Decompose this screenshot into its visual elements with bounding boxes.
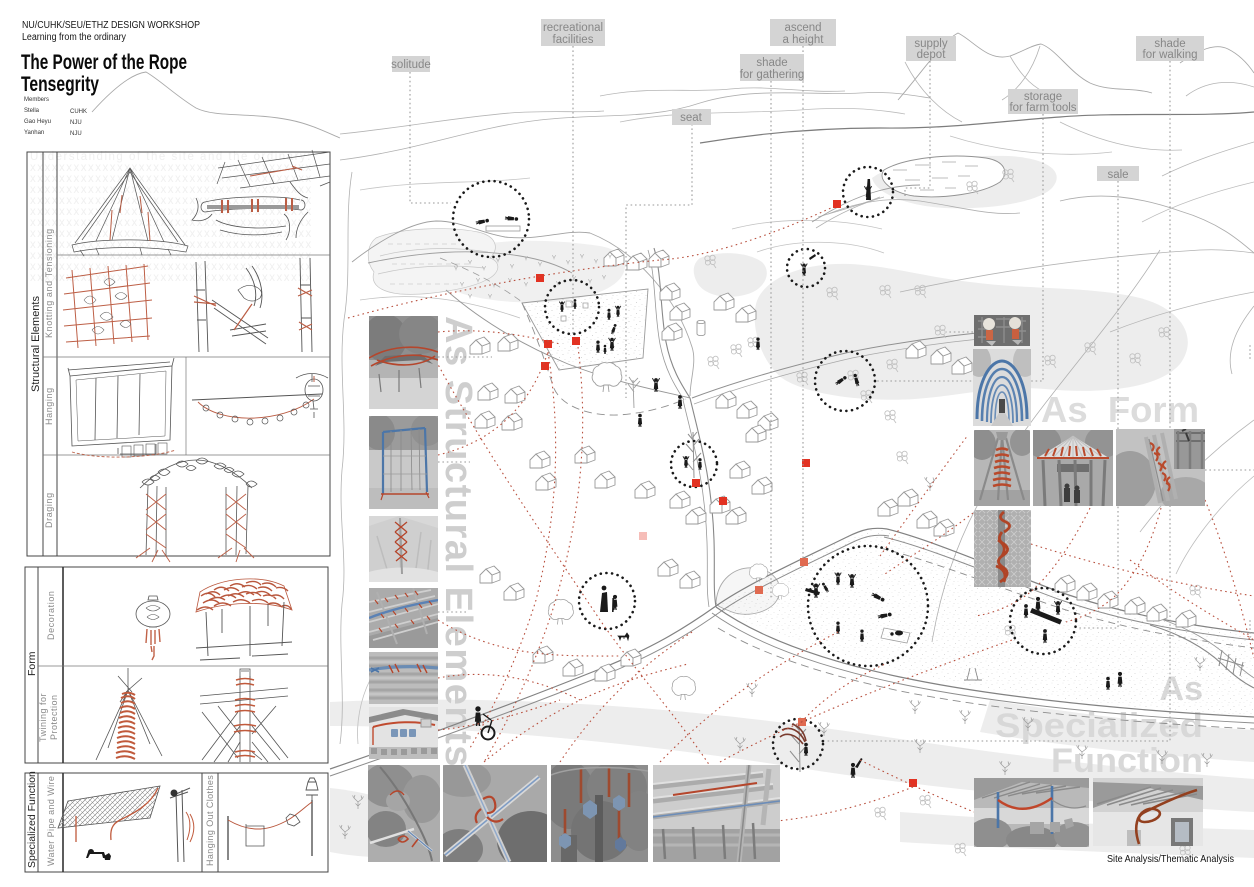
svg-text:facilities: facilities: [553, 34, 594, 46]
svg-text:NU/CUHK/SEU/ETHZ DESIGN WORKSH: NU/CUHK/SEU/ETHZ DESIGN WORKSHOP: [22, 20, 200, 31]
svg-text:solitude: solitude: [391, 59, 431, 71]
svg-text:recreational: recreational: [543, 22, 603, 34]
svg-text:Gao Heyu: Gao Heyu: [24, 119, 51, 125]
svg-text:Knotting and Tensioning: Knotting and Tensioning: [44, 228, 54, 338]
svg-text:Twining for: Twining for: [38, 693, 48, 742]
svg-text:As Form: As Form: [1041, 389, 1199, 430]
svg-text:Learning from the ordinary: Learning from the ordinary: [22, 32, 126, 43]
svg-text:for walking: for walking: [1143, 49, 1198, 61]
svg-text:Structural Elements: Structural Elements: [30, 296, 42, 392]
svg-text:The Power of the Rope: The Power of the Rope: [21, 51, 187, 74]
svg-text:for gathering: for gathering: [740, 69, 805, 81]
svg-text:shade: shade: [756, 57, 787, 69]
svg-text:Protection: Protection: [49, 694, 59, 740]
svg-text:sale: sale: [1107, 169, 1128, 181]
svg-text:Yanhan: Yanhan: [24, 130, 44, 136]
svg-text:Tensegrity: Tensegrity: [21, 73, 99, 96]
svg-text:ascend: ascend: [784, 22, 821, 34]
svg-text:Specialized Function: Specialized Function: [26, 771, 38, 868]
svg-text:NJU: NJU: [70, 120, 82, 126]
svg-text:Stella: Stella: [24, 108, 40, 114]
svg-text:Water Pipe and Wire: Water Pipe and Wire: [46, 776, 56, 866]
svg-text:Form: Form: [26, 651, 38, 676]
svg-text:Members: Members: [24, 97, 49, 103]
svg-text:seat: seat: [680, 112, 703, 124]
svg-text:Site Analysis/Thematic Analysi: Site Analysis/Thematic Analysis: [1107, 853, 1234, 865]
svg-text:NJU: NJU: [70, 131, 82, 137]
svg-text:Hanging Out Clothes: Hanging Out Clothes: [205, 775, 215, 866]
svg-text:a height: a height: [783, 34, 825, 46]
svg-text:CUHK: CUHK: [70, 109, 87, 115]
svg-text:for farm tools: for farm tools: [1009, 102, 1076, 114]
svg-text:Draging: Draging: [44, 492, 54, 528]
svg-text:Hanging: Hanging: [44, 387, 54, 425]
svg-text:depot: depot: [917, 49, 947, 61]
svg-text:Function: Function: [1051, 742, 1203, 780]
svg-text:As Structural Elements: As Structural Elements: [437, 316, 479, 768]
svg-text:Decoration: Decoration: [46, 590, 56, 640]
